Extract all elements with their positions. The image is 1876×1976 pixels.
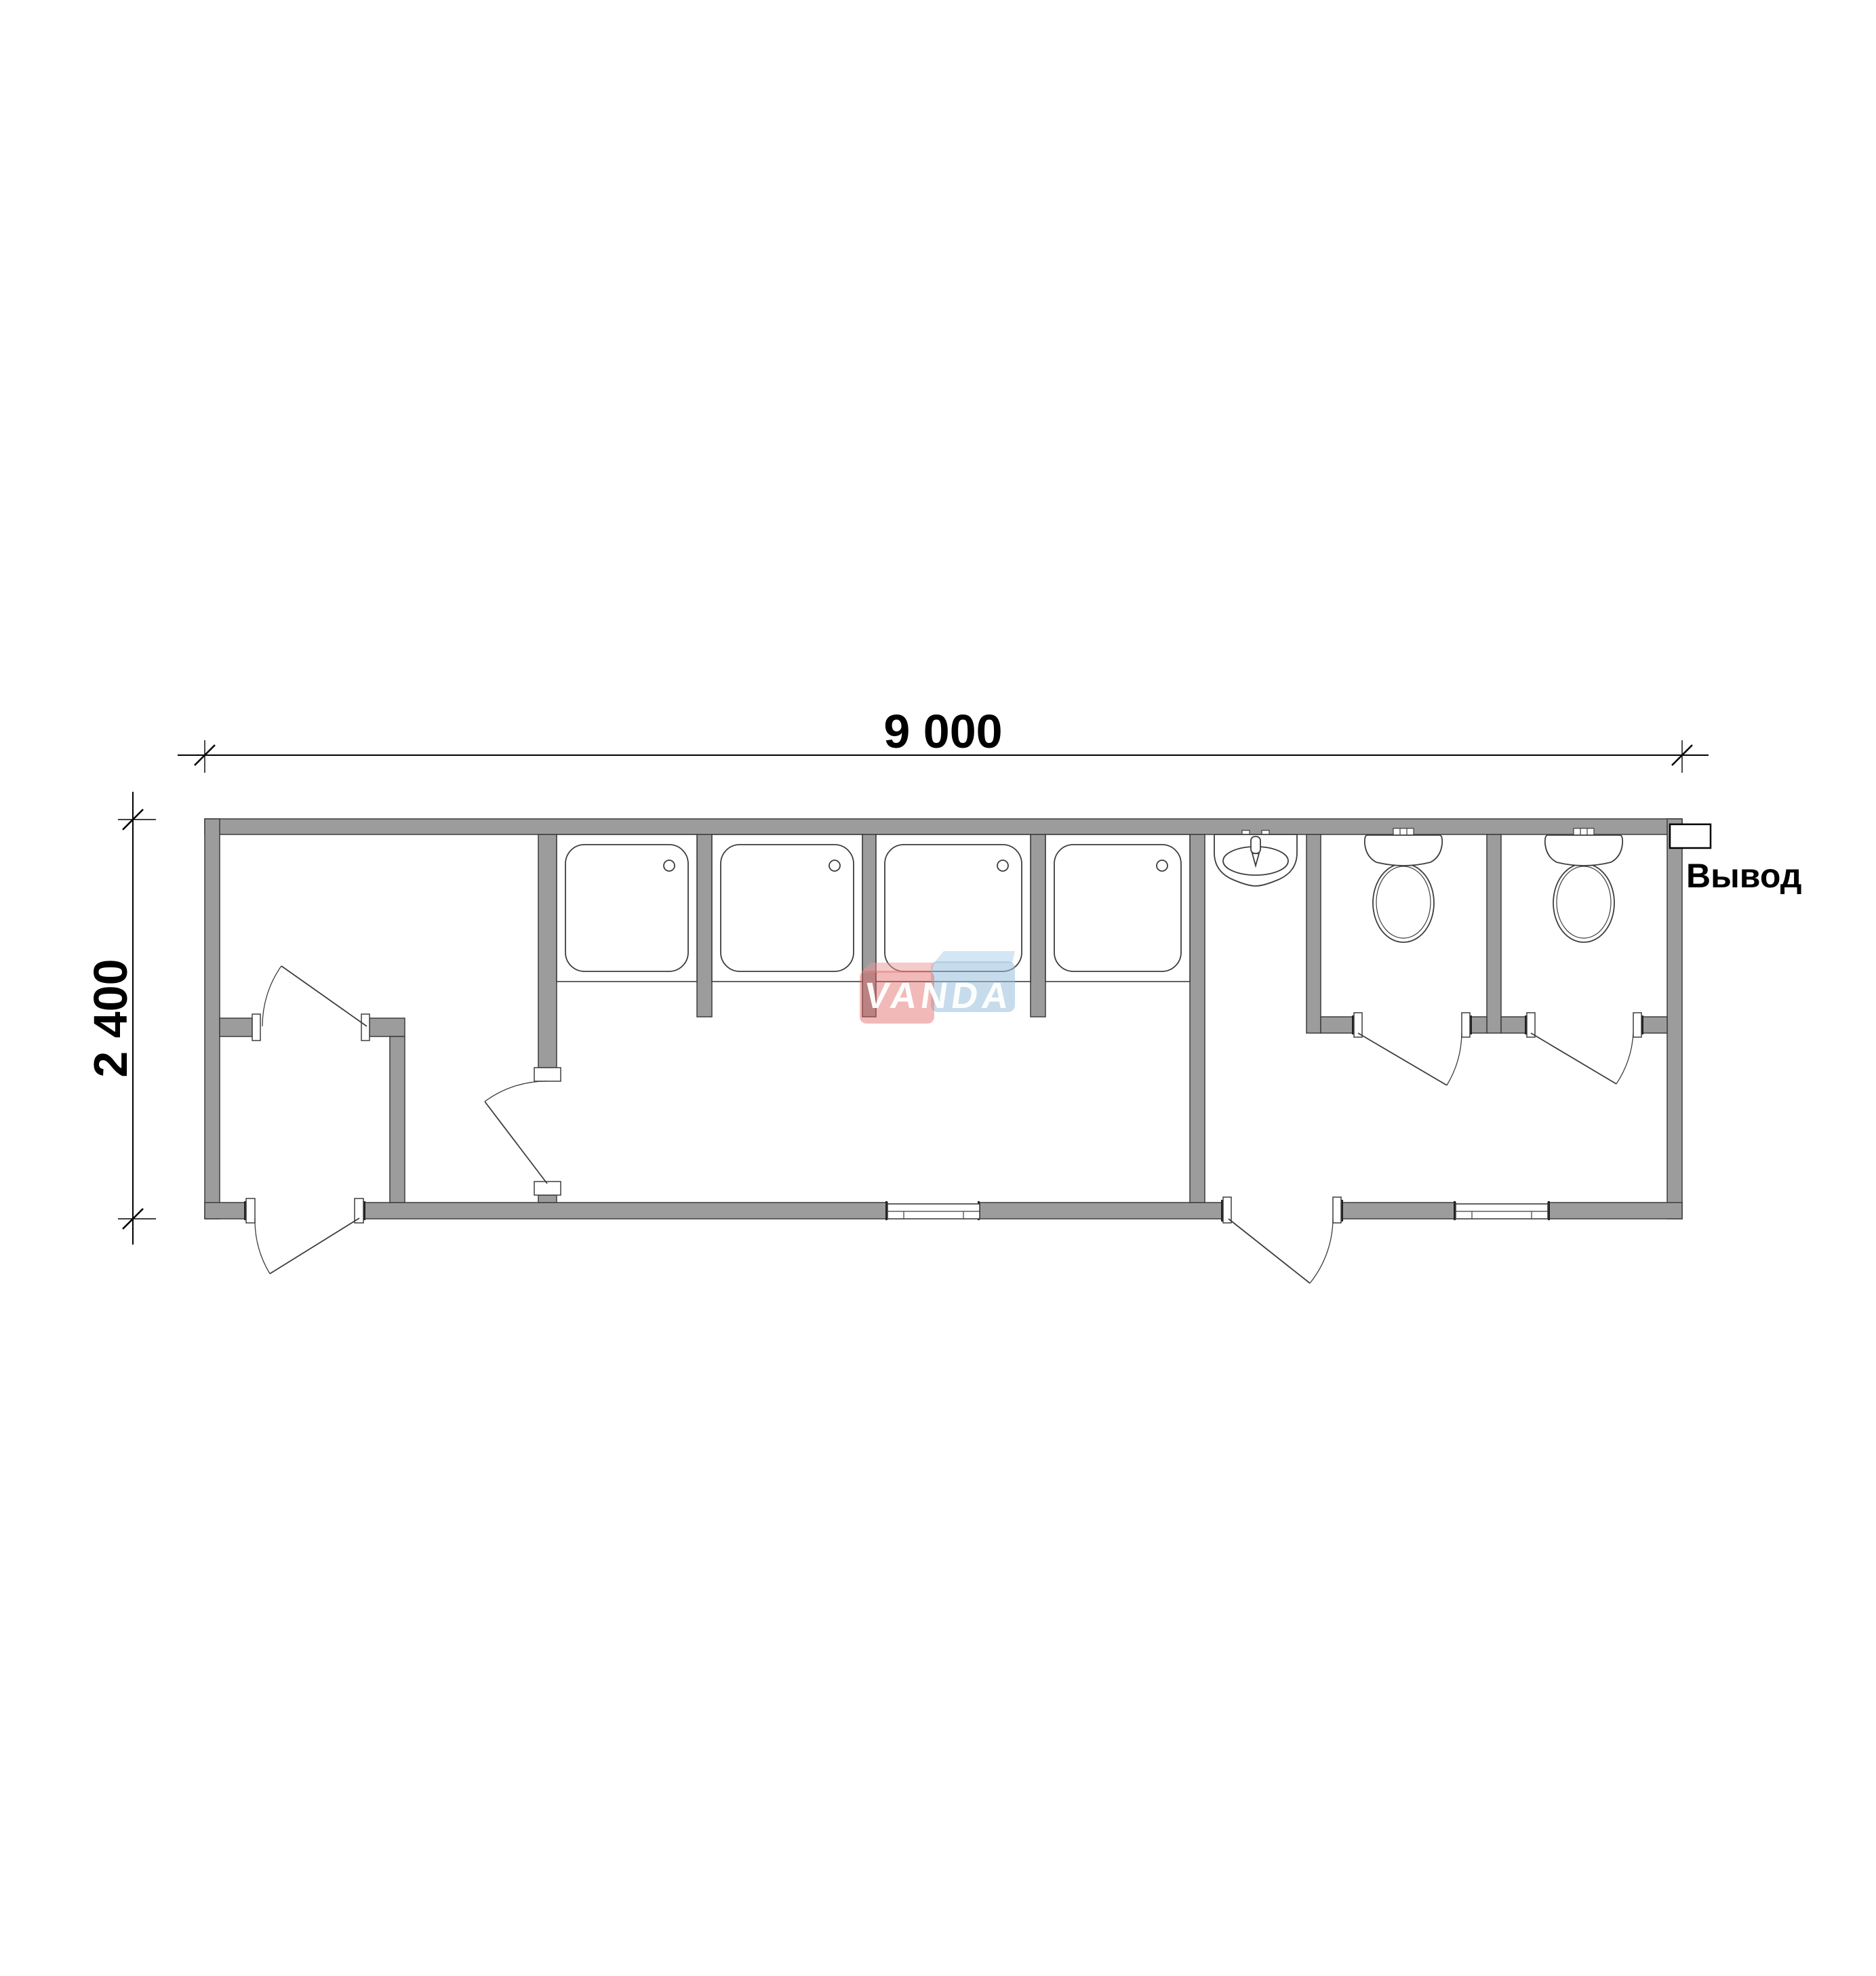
window-wc-corridor (1456, 1204, 1548, 1219)
wall-bottom-seg (1548, 1203, 1682, 1219)
outlet-label: Вывод (1686, 857, 1802, 895)
wall-bottom-seg (1341, 1203, 1456, 1219)
wall-entry-east (538, 1195, 557, 1203)
outlet-box (1670, 824, 1711, 848)
wall-bottom-seg (980, 1203, 1223, 1219)
wall-tambour-horizontal (220, 1018, 252, 1036)
watermark-text: VANDA (862, 975, 1015, 1016)
wall-central-divider (1190, 834, 1205, 1203)
sink (1214, 830, 1297, 886)
toilet-2 (1545, 828, 1622, 942)
wall-bottom-seg (205, 1203, 246, 1219)
utility-outlet: Вывод (1670, 824, 1802, 895)
floor-plan-drawing: 9 000 2 400 (0, 0, 1876, 1976)
wall-right (1667, 819, 1682, 1219)
wall-end-caps (244, 1015, 1643, 1222)
shower-cabin-2 (712, 834, 862, 982)
sink-faucet (1251, 836, 1260, 853)
door-wc-cubicle-1 (1358, 1033, 1462, 1085)
door-tambour-exterior (255, 1218, 359, 1274)
wall-top (205, 819, 1682, 834)
toilet-1 (1365, 828, 1442, 942)
shower-cabin-4 (1045, 834, 1190, 982)
window-central-room (887, 1204, 980, 1219)
floor-plan-page: 9 000 2 400 (0, 0, 1876, 1976)
wall-wc-front (1470, 1017, 1487, 1033)
wall-tambour-vertical (390, 1036, 405, 1203)
wall-bottom-seg (363, 1203, 887, 1219)
shower-partition (697, 834, 712, 1017)
wall-entry-east (538, 834, 557, 1068)
door-tambour-to-entry (262, 966, 367, 1026)
wall-left (205, 819, 220, 1219)
dimension-top: 9 000 (178, 705, 1709, 773)
shower-cabin-1 (557, 834, 697, 982)
door-entry-to-shower-room (485, 1081, 547, 1184)
wall-sink-alcove-east (1306, 834, 1321, 1033)
door-wc-corridor-exterior (1229, 1219, 1333, 1283)
wall-wc-front (1641, 1017, 1667, 1033)
wall-wc-partition (1487, 834, 1501, 1033)
dimension-left: 2 400 (84, 792, 156, 1245)
door-jambs (246, 1013, 1641, 1223)
wall-wc-front (1321, 1017, 1354, 1033)
dimension-height-label: 2 400 (84, 959, 137, 1077)
wall-wc-front (1501, 1017, 1527, 1033)
wall-tambour-horizontal (370, 1018, 405, 1036)
door-wc-cubicle-2 (1531, 1033, 1633, 1084)
shower-partition (1031, 834, 1045, 1017)
dimension-width-label: 9 000 (883, 705, 1002, 758)
